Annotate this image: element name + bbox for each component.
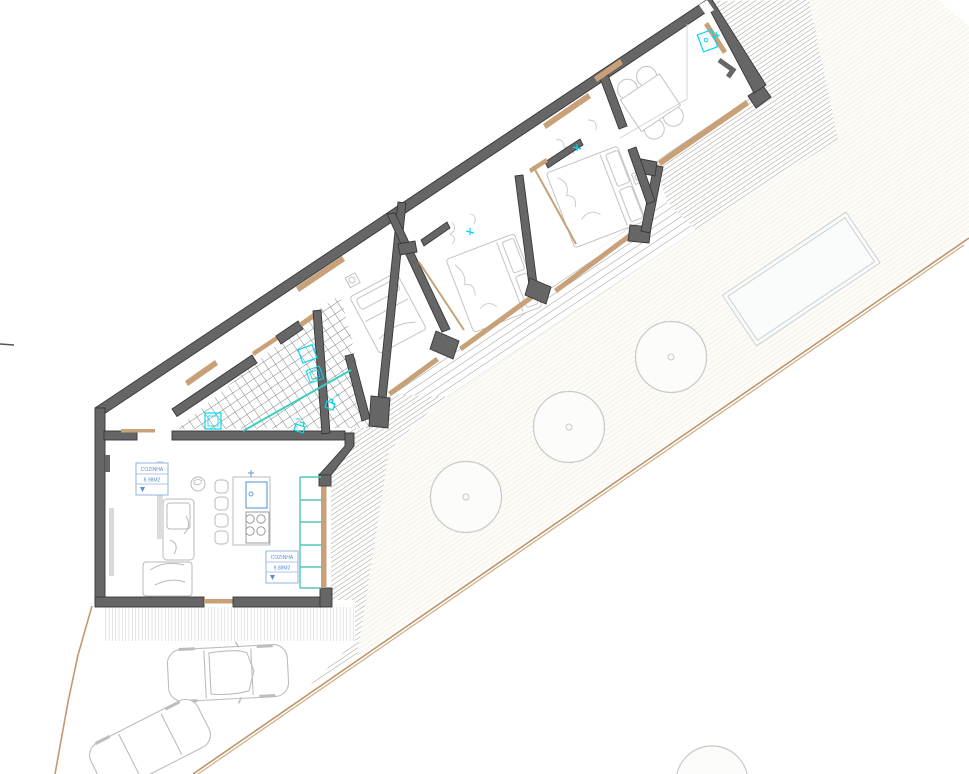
svg-text:9.88M2: 9.88M2 [274,566,291,572]
svg-text:COZINHA: COZINHA [141,467,164,473]
svg-text:COZINHA: COZINHA [271,555,294,561]
svg-text:8.98M2: 8.98M2 [144,478,161,484]
svg-text:wc: wc [336,393,341,397]
svg-text:wc: wc [296,417,301,421]
